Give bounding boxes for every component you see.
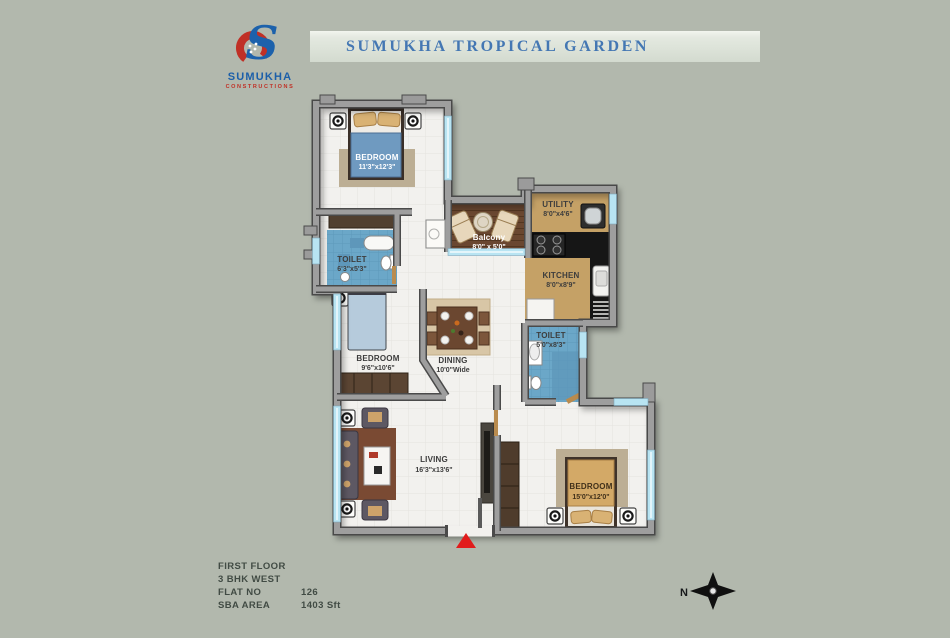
bedside-lamp-icon	[330, 113, 346, 129]
bedroom3-dims: 15'0"x12'0"	[572, 494, 609, 501]
bed-icon	[348, 292, 386, 350]
bedroom1-dims: 11'3"x12'3"	[359, 164, 396, 171]
kitchen-label: KITCHEN	[543, 271, 580, 280]
cabinet-icon	[527, 299, 554, 322]
utility-label: UTILITY	[542, 200, 574, 209]
unit-type-label: 3 BHK WEST	[218, 573, 341, 586]
toilet1-dims: 6'3"x5'3"	[337, 266, 366, 273]
sba-area-value: 1403 Sft	[301, 600, 341, 611]
floor-label: FIRST FLOOR	[218, 560, 341, 573]
toilet1-label: TOILET	[337, 255, 367, 264]
floor-plan: BEDROOM 11'3"x12'3" TOILET 6'3"x5'3" BED…	[0, 0, 950, 638]
living-label: LIVING	[420, 455, 448, 464]
pillow-icon	[591, 510, 612, 524]
pillow-icon	[377, 112, 400, 127]
pillow-icon	[571, 510, 592, 524]
dining-set	[426, 299, 490, 355]
flat-row: FLAT NO 126	[218, 586, 341, 599]
dining-label: DINING	[438, 356, 467, 365]
door-leaf	[392, 266, 396, 284]
plan-info: FIRST FLOOR 3 BHK WEST FLAT NO 126 SBA A…	[218, 560, 341, 612]
bedroom3-label: BEDROOM	[569, 482, 612, 491]
washbasin-icon	[341, 273, 350, 282]
chair-icon	[479, 332, 489, 345]
bedside-lamp-icon	[620, 508, 636, 524]
dining-dims: 10'0"Wide	[436, 367, 469, 374]
chair-icon	[427, 312, 437, 325]
chair-icon	[427, 332, 437, 345]
balcony-label: Balcony	[473, 233, 506, 242]
wardrobe-icon	[329, 214, 397, 228]
bedside-lamp-icon	[405, 113, 421, 129]
door-leaf	[494, 410, 498, 436]
compass-north-label: N	[680, 587, 688, 599]
door-leaf	[478, 498, 482, 528]
bathtub-icon	[364, 236, 394, 250]
sba-row: SBA AREA 1403 Sft	[218, 599, 341, 612]
flat-no-value: 126	[301, 587, 318, 598]
balcony-dims: 8'0" x 5'0"	[472, 244, 505, 251]
bedroom1-label: BEDROOM	[355, 153, 398, 162]
utility-fixtures	[581, 204, 605, 228]
sba-area-label: SBA AREA	[218, 599, 298, 612]
living-dims: 16'3"x13'6"	[415, 467, 452, 474]
toilet2-label: TOILET	[536, 331, 566, 340]
kitchen-dims: 8'0"x8'9"	[546, 282, 575, 289]
bedroom3-furniture	[498, 442, 636, 530]
pillow-icon	[353, 112, 376, 127]
utility-dims: 8'0"x4'6"	[543, 211, 572, 218]
chair-icon	[479, 312, 489, 325]
toilet2-dims: 5'0"x8'3"	[536, 342, 565, 349]
bedroom2-dims: 9'6"x10'6"	[361, 365, 394, 372]
flat-no-label: FLAT NO	[218, 586, 298, 599]
shower-area	[552, 352, 581, 400]
wc-icon	[381, 256, 391, 270]
round-table-icon	[474, 213, 493, 232]
wc-icon	[531, 377, 541, 390]
compass: N	[680, 572, 736, 610]
page: S SUMUKHA CONSTRUCTIONS SUMUKHA TROPICAL…	[0, 0, 950, 638]
bedside-lamp-icon	[547, 508, 563, 524]
bedroom2-label: BEDROOM	[356, 354, 399, 363]
